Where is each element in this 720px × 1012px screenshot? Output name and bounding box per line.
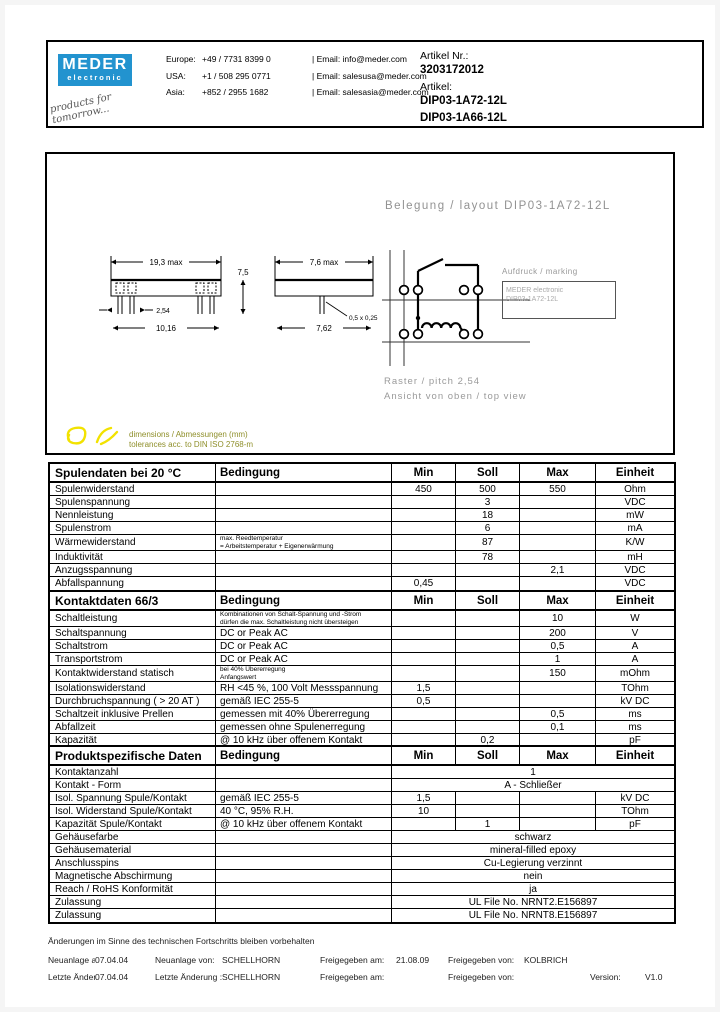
max-cell: [520, 682, 596, 694]
condition-cell: [216, 564, 392, 576]
condition-cell: gemessen ohne Spulenerregung: [216, 721, 392, 733]
condition-small-text: Kombinationen von Schalt-Spannung und -S…: [220, 611, 361, 619]
max-cell: [520, 551, 596, 563]
parameter-cell: Gehäusematerial: [50, 844, 216, 856]
table-row: ZulassungUL File No. NRNT2.E156897: [50, 896, 674, 909]
max-cell: [520, 818, 596, 830]
condition-cell: [216, 857, 392, 869]
table-row: Spulenwiderstand450500550Ohm: [50, 483, 674, 496]
column-header-unit: Einheit: [596, 592, 674, 609]
footer-value: 07.04.04: [95, 972, 155, 982]
marking-label: Aufdruck / marking: [502, 267, 578, 276]
max-cell: 0,5: [520, 640, 596, 652]
soll-cell: [456, 792, 520, 804]
table-row: Abfallspannung0,45VDC: [50, 577, 674, 590]
svg-text:10,16: 10,16: [156, 324, 177, 333]
unit-cell: mA: [596, 522, 674, 534]
logo-brand-text: MEDER: [58, 56, 132, 73]
table-row: Spulenspannung3VDC: [50, 496, 674, 509]
min-cell: [392, 496, 456, 508]
table-row: SchaltstromDC or Peak AC0,5A: [50, 640, 674, 653]
condition-cell: [216, 577, 392, 590]
max-cell: [520, 535, 596, 550]
soll-cell: 3: [456, 496, 520, 508]
footer-label: Freigegeben von:: [448, 955, 524, 965]
contact-email-list: | Email: info@meder.com | Email: salesus…: [312, 54, 429, 104]
footer-value: KOLBRICH: [524, 955, 590, 965]
max-cell: [520, 695, 596, 707]
soll-cell: [456, 653, 520, 665]
unit-cell: mW: [596, 509, 674, 521]
unit-cell: W: [596, 611, 674, 626]
table-row: Isol. Widerstand Spule/Kontakt40 °C, 95%…: [50, 805, 674, 818]
footer-revision-row-1: Neuanlage am:07.04.04Neuanlage von:SCHEL…: [48, 955, 708, 965]
condition-cell: gemäß IEC 255-5: [216, 792, 392, 804]
max-cell: 550: [520, 483, 596, 495]
soll-cell: 500: [456, 483, 520, 495]
min-cell: 1,5: [392, 682, 456, 694]
max-cell: [520, 792, 596, 804]
parameter-cell: Isolationswiderstand: [50, 682, 216, 694]
table-row: Isol. Spannung Spule/Kontaktgemäß IEC 25…: [50, 792, 674, 805]
min-cell: [392, 666, 456, 681]
parameter-cell: Gehäusefarbe: [50, 831, 216, 843]
soll-cell: [456, 577, 520, 590]
condition-cell: [216, 883, 392, 895]
span-value-cell: ja: [392, 883, 674, 895]
table-row: SchaltleistungKombinationen von Schalt-S…: [50, 611, 674, 627]
condition-cell: DC or Peak AC: [216, 640, 392, 652]
unit-cell: kV DC: [596, 792, 674, 804]
condition-cell: DC or Peak AC: [216, 653, 392, 665]
table-row: Wärmewiderstandmax. Reedtemperatur= Arbe…: [50, 535, 674, 551]
condition-cell: [216, 483, 392, 495]
unit-cell: mH: [596, 551, 674, 563]
table-row: TransportstromDC or Peak AC1A: [50, 653, 674, 666]
parameter-cell: Isol. Widerstand Spule/Kontakt: [50, 805, 216, 817]
parameter-cell: Anschlusspins: [50, 857, 216, 869]
min-cell: 0,45: [392, 577, 456, 590]
footer-label: Version:: [590, 972, 645, 982]
pitch-note: Raster / pitch 2,54: [384, 376, 480, 387]
meder-logo: MEDER electronic: [58, 54, 132, 86]
email-info: | Email: info@meder.com: [312, 54, 429, 64]
column-header-soll: Soll: [456, 592, 520, 609]
contact-row-usa: USA: +1 / 508 295 0771: [166, 71, 271, 81]
max-cell: 150: [520, 666, 596, 681]
condition-cell: Kombinationen von Schalt-Spannung und -S…: [216, 611, 392, 626]
unit-cell: pF: [596, 818, 674, 830]
max-cell: [520, 496, 596, 508]
parameter-cell: Abfallspannung: [50, 577, 216, 590]
soll-cell: [456, 564, 520, 576]
contact-region-label: Asia:: [166, 87, 202, 97]
svg-text:19,3 max: 19,3 max: [150, 258, 183, 267]
footer-label: Freigegeben von:: [448, 972, 524, 982]
article-number-value: 3203172012: [420, 64, 507, 76]
contact-data-table: Kontaktdaten 66/3BedingungMinSollMaxEinh…: [48, 590, 676, 749]
unit-cell: A: [596, 653, 674, 665]
parameter-cell: Induktivität: [50, 551, 216, 563]
span-value-cell: UL File No. NRNT8.E156897: [392, 909, 674, 922]
max-cell: 0,5: [520, 708, 596, 720]
parameter-cell: Wärmewiderstand: [50, 535, 216, 550]
soll-cell: [456, 611, 520, 626]
parameter-cell: Kapazität Spule/Kontakt: [50, 818, 216, 830]
parameter-cell: Zulassung: [50, 896, 216, 908]
column-header-condition: Bedingung: [216, 464, 392, 481]
soll-cell: [456, 627, 520, 639]
footer-label: Letzte Änderung :: [155, 972, 222, 982]
condition-cell: [216, 766, 392, 778]
soll-cell: [456, 682, 520, 694]
max-cell: [520, 522, 596, 534]
condition-cell: @ 10 kHz über offenem Kontakt: [216, 818, 392, 830]
soll-cell: [456, 708, 520, 720]
unit-cell: K/W: [596, 535, 674, 550]
parameter-cell: Schaltstrom: [50, 640, 216, 652]
condition-cell: [216, 844, 392, 856]
condition-small-text: dürfen die max. Schaltleistung nicht übe…: [220, 619, 358, 627]
table-header-row: Kontaktdaten 66/3BedingungMinSollMaxEinh…: [50, 592, 674, 611]
condition-cell: [216, 909, 392, 922]
table-row: SchaltspannungDC or Peak AC200V: [50, 627, 674, 640]
parameter-cell: Spulenstrom: [50, 522, 216, 534]
table-row: Gehäusefarbeschwarz: [50, 831, 674, 844]
yellow-marker-scribble: [59, 420, 129, 452]
span-value-cell: mineral-filled epoxy: [392, 844, 674, 856]
column-header-min: Min: [392, 464, 456, 481]
span-value-cell: A - Schließer: [392, 779, 674, 791]
table-row: Nennleistung18mW: [50, 509, 674, 522]
unit-cell: ms: [596, 721, 674, 733]
dimension-note: dimensions / Abmessungen (mm) tolerances…: [129, 430, 253, 450]
parameter-cell: Schaltzeit inklusive Prellen: [50, 708, 216, 720]
max-cell: 0,1: [520, 721, 596, 733]
min-cell: 450: [392, 483, 456, 495]
span-value-cell: UL File No. NRNT2.E156897: [392, 896, 674, 908]
contact-phone: +852 / 2955 1682: [202, 87, 268, 97]
svg-text:7,62: 7,62: [316, 324, 332, 333]
max-cell: [520, 805, 596, 817]
header-box: MEDER electronic products for tomorrow..…: [46, 40, 704, 128]
span-value-cell: nein: [392, 870, 674, 882]
soll-cell: 18: [456, 509, 520, 521]
parameter-cell: Kontaktwiderstand statisch: [50, 666, 216, 681]
marking-line-brand: MEDER electronic: [506, 286, 612, 295]
condition-cell: [216, 870, 392, 882]
svg-text:7,6 max: 7,6 max: [310, 258, 338, 267]
top-view-note: Ansicht von oben / top view: [384, 391, 527, 402]
condition-cell: [216, 779, 392, 791]
span-value-cell: 1: [392, 766, 674, 778]
footer-label: Freigegeben am:: [320, 972, 396, 982]
soll-cell: [456, 695, 520, 707]
condition-cell: RH <45 %, 100 Volt Messspannung: [216, 682, 392, 694]
dimension-note-line2: tolerances acc. to DIN ISO 2768-m: [129, 440, 253, 450]
table-row: AnschlusspinsCu-Legierung verzinnt: [50, 857, 674, 870]
parameter-cell: Schaltspannung: [50, 627, 216, 639]
parameter-cell: Reach / RoHS Konformität: [50, 883, 216, 895]
column-header-condition: Bedingung: [216, 747, 392, 764]
soll-cell: [456, 640, 520, 652]
condition-cell: [216, 896, 392, 908]
footer-revision-row-2: Letzte Änderung07.04.04Letzte Änderung :…: [48, 972, 708, 982]
footer-value: SCHELLHORN: [222, 972, 320, 982]
unit-cell: V: [596, 627, 674, 639]
max-cell: [520, 509, 596, 521]
condition-cell: gemäß IEC 255-5: [216, 695, 392, 707]
column-header-soll: Soll: [456, 747, 520, 764]
min-cell: [392, 564, 456, 576]
unit-cell: ms: [596, 708, 674, 720]
condition-cell: [216, 496, 392, 508]
footer-value: [645, 955, 708, 965]
contact-row-asia: Asia: +852 / 2955 1682: [166, 87, 271, 97]
footer-value: V1.0: [645, 972, 708, 982]
table-row: Anzugsspannung2,1VDC: [50, 564, 674, 577]
soll-cell: 78: [456, 551, 520, 563]
soll-cell: [456, 805, 520, 817]
column-header-unit: Einheit: [596, 464, 674, 481]
min-cell: [392, 708, 456, 720]
svg-text:0,5 x 0,25: 0,5 x 0,25: [349, 315, 378, 322]
soll-cell: 6: [456, 522, 520, 534]
unit-cell: mOhm: [596, 666, 674, 681]
column-header-max: Max: [520, 464, 596, 481]
parameter-cell: Durchbruchspannung ( > 20 AT ): [50, 695, 216, 707]
footer-value: [396, 972, 448, 982]
span-value-cell: Cu-Legierung verzinnt: [392, 857, 674, 869]
footer-label: [590, 955, 645, 965]
table-row: Kapazität Spule/Kontakt@ 10 kHz über off…: [50, 818, 674, 831]
footer-label: Freigegeben am:: [320, 955, 396, 965]
table-row: Magnetische Abschirmungnein: [50, 870, 674, 883]
svg-text:7,5: 7,5: [237, 268, 249, 277]
table-row: Schaltzeit inklusive Prellengemessen mit…: [50, 708, 674, 721]
parameter-cell: Abfallzeit: [50, 721, 216, 733]
table-row: Gehäusematerialmineral-filled epoxy: [50, 844, 674, 857]
logo-tagline: products for tomorrow...: [49, 80, 171, 126]
min-cell: [392, 535, 456, 550]
column-header-max: Max: [520, 592, 596, 609]
table-row: Induktivität78mH: [50, 551, 674, 564]
condition-cell: [216, 522, 392, 534]
table-row: IsolationswiderstandRH <45 %, 100 Volt M…: [50, 682, 674, 695]
condition-cell: [216, 831, 392, 843]
min-cell: [392, 611, 456, 626]
contact-row-europe: Europe: +49 / 7731 8399 0: [166, 54, 271, 64]
logo-sub-text: electronic: [58, 73, 132, 82]
column-header-unit: Einheit: [596, 747, 674, 764]
parameter-cell: Schaltleistung: [50, 611, 216, 626]
min-cell: 0,5: [392, 695, 456, 707]
table-row: Durchbruchspannung ( > 20 AT )gemäß IEC …: [50, 695, 674, 708]
condition-cell: gemessen mit 40% Übererregung: [216, 708, 392, 720]
min-cell: [392, 721, 456, 733]
footer-label: Neuanlage von:: [155, 955, 222, 965]
condition-cell: max. Reedtemperatur= Arbeitstemperatur +…: [216, 535, 392, 550]
footer-value: 07.04.04: [95, 955, 155, 965]
footer-label: Neuanlage am:: [48, 955, 95, 965]
unit-cell: A: [596, 640, 674, 652]
layout-title: Belegung / layout DIP03-1A72-12L: [385, 200, 611, 212]
soll-cell: 87: [456, 535, 520, 550]
unit-cell: VDC: [596, 564, 674, 576]
max-cell: 10: [520, 611, 596, 626]
soll-cell: 1: [456, 818, 520, 830]
parameter-cell: Kontaktanzahl: [50, 766, 216, 778]
max-cell: 200: [520, 627, 596, 639]
condition-cell: bei 40% ÜbererregungAnfangswert: [216, 666, 392, 681]
unit-cell: TOhm: [596, 682, 674, 694]
table-row: Spulenstrom6mA: [50, 522, 674, 535]
condition-cell: [216, 551, 392, 563]
column-header-soll: Soll: [456, 464, 520, 481]
column-header-min: Min: [392, 747, 456, 764]
table-row: Reach / RoHS Konformitätja: [50, 883, 674, 896]
unit-cell: kV DC: [596, 695, 674, 707]
parameter-cell: Spulenspannung: [50, 496, 216, 508]
unit-cell: Ohm: [596, 483, 674, 495]
article-item-2: DIP03-1A66-12L: [420, 112, 507, 124]
dimension-note-line1: dimensions / Abmessungen (mm): [129, 430, 253, 440]
contact-region-label: Europe:: [166, 54, 202, 64]
parameter-cell: Isol. Spannung Spule/Kontakt: [50, 792, 216, 804]
table-title: Produktspezifische Daten: [50, 747, 216, 764]
span-value-cell: schwarz: [392, 831, 674, 843]
column-header-max: Max: [520, 747, 596, 764]
min-cell: 1,5: [392, 792, 456, 804]
parameter-cell: Kontakt - Form: [50, 779, 216, 791]
min-cell: [392, 653, 456, 665]
condition-cell: [216, 509, 392, 521]
condition-small-text: max. Reedtemperatur: [220, 535, 283, 543]
unit-cell: VDC: [596, 496, 674, 508]
coil-data-table: Spulendaten bei 20 °CBedingungMinSollMax…: [48, 462, 676, 592]
table-header-row: Produktspezifische DatenBedingungMinSoll…: [50, 747, 674, 766]
article-item-1: DIP03-1A72-12L: [420, 95, 507, 107]
email-salesusa: | Email: salesusa@meder.com: [312, 71, 429, 81]
product-data-table: Produktspezifische DatenBedingungMinSoll…: [48, 745, 676, 924]
drawing-box: Belegung / layout DIP03-1A72-12L 19,3 ma…: [45, 152, 675, 455]
unit-cell: TOhm: [596, 805, 674, 817]
article-block: Artikel Nr.: 3203172012 Artikel: DIP03-1…: [420, 50, 507, 129]
table-header-row: Spulendaten bei 20 °CBedingungMinSollMax…: [50, 464, 674, 483]
min-cell: [392, 522, 456, 534]
table-row: Abfallzeitgemessen ohne Spulenerregung0,…: [50, 721, 674, 734]
max-cell: 2,1: [520, 564, 596, 576]
min-cell: 10: [392, 805, 456, 817]
soll-cell: [456, 666, 520, 681]
footer-value: SCHELLHORN: [222, 955, 320, 965]
article-number-label: Artikel Nr.:: [420, 50, 507, 62]
max-cell: 1: [520, 653, 596, 665]
marking-box: MEDER electronic DIP03-1A72-12L: [502, 281, 616, 319]
max-cell: [520, 577, 596, 590]
table-row: Kontaktwiderstand statischbei 40% Überer…: [50, 666, 674, 682]
table-title: Kontaktdaten 66/3: [50, 592, 216, 609]
change-notice: Änderungen im Sinne des technischen Fort…: [48, 936, 315, 946]
footer-value: [524, 972, 590, 982]
condition-cell: DC or Peak AC: [216, 627, 392, 639]
min-cell: [392, 640, 456, 652]
condition-small-text: bei 40% Übererregung: [220, 666, 285, 674]
package-dimension-drawing: 19,3 max 2,54 10,16 7,5 7,6 max: [97, 250, 397, 380]
soll-cell: [456, 721, 520, 733]
svg-text:2,54: 2,54: [156, 308, 170, 315]
unit-cell: VDC: [596, 577, 674, 590]
min-cell: [392, 627, 456, 639]
parameter-cell: Nennleistung: [50, 509, 216, 521]
contact-phone: +1 / 508 295 0771: [202, 71, 271, 81]
min-cell: [392, 551, 456, 563]
email-salesasia: | Email: salesasia@meder.com: [312, 87, 429, 97]
footer-value: 21.08.09: [396, 955, 448, 965]
parameter-cell: Zulassung: [50, 909, 216, 922]
min-cell: [392, 509, 456, 521]
table-title: Spulendaten bei 20 °C: [50, 464, 216, 481]
table-row: Kontaktanzahl1: [50, 766, 674, 779]
parameter-cell: Spulenwiderstand: [50, 483, 216, 495]
condition-small-text: Anfangswert: [220, 674, 256, 682]
column-header-min: Min: [392, 592, 456, 609]
footer-label: Letzte Änderung: [48, 972, 95, 982]
contact-phone: +49 / 7731 8399 0: [202, 54, 271, 64]
marking-line-type: DIP03-1A72-12L: [506, 295, 612, 304]
parameter-cell: Anzugsspannung: [50, 564, 216, 576]
column-header-condition: Bedingung: [216, 592, 392, 609]
article-label: Artikel:: [420, 81, 507, 93]
table-row: Kontakt - FormA - Schließer: [50, 779, 674, 792]
parameter-cell: Transportstrom: [50, 653, 216, 665]
condition-small-text: = Arbeitstemperatur + Eigenerwärmung: [220, 543, 333, 551]
min-cell: [392, 818, 456, 830]
condition-cell: 40 °C, 95% R.H.: [216, 805, 392, 817]
table-row: ZulassungUL File No. NRNT8.E156897: [50, 909, 674, 922]
contact-phone-list: Europe: +49 / 7731 8399 0 USA: +1 / 508 …: [166, 54, 271, 104]
parameter-cell: Magnetische Abschirmung: [50, 870, 216, 882]
contact-region-label: USA:: [166, 71, 202, 81]
